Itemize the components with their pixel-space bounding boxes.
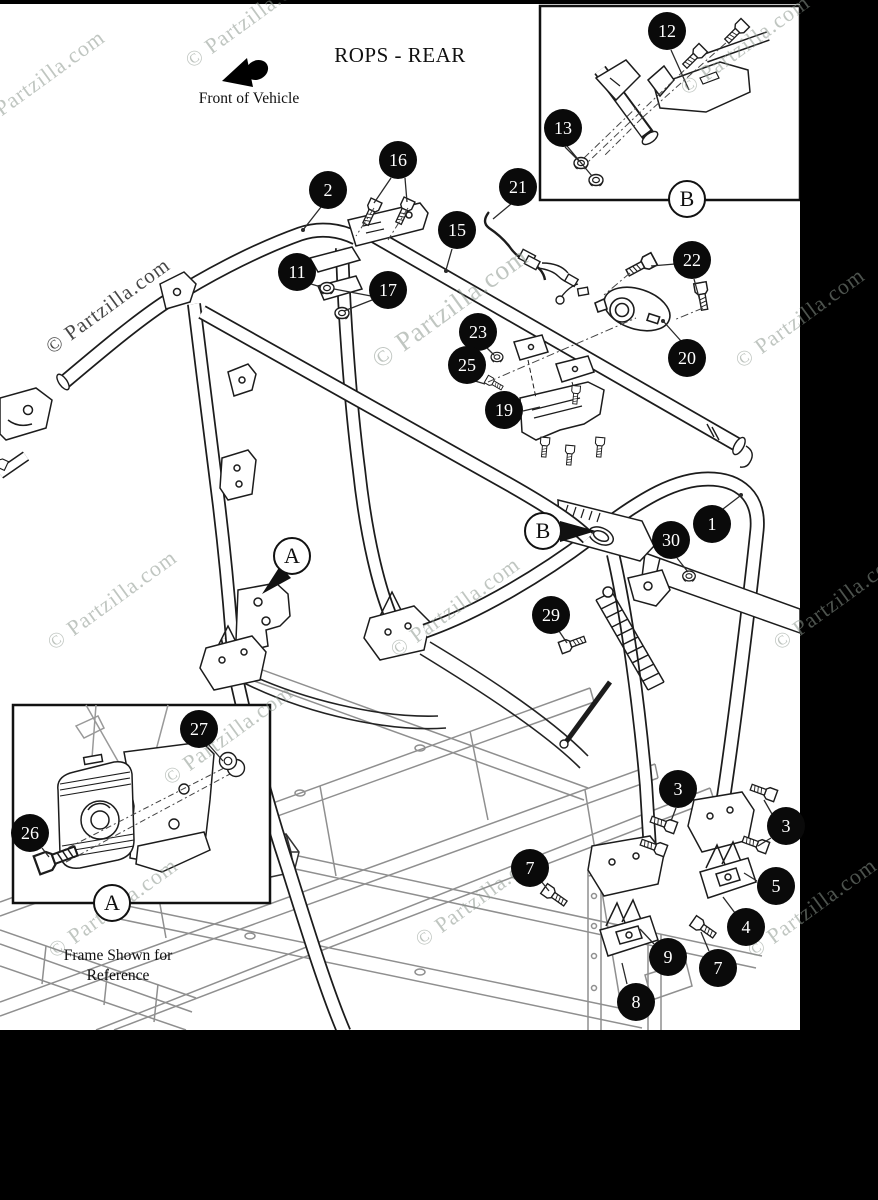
callout-22: 22 bbox=[673, 241, 711, 279]
callout-12: 12 bbox=[648, 12, 686, 50]
callout-1: 1 bbox=[693, 505, 731, 543]
callout-27: 27 bbox=[180, 710, 218, 748]
parts-diagram-page: © Partzilla.com © Partzilla.com © Partzi… bbox=[0, 0, 878, 1200]
callout-15: 15 bbox=[438, 211, 476, 249]
front-of-vehicle-label: Front of Vehicle bbox=[194, 90, 304, 108]
callout-3-b: 3 bbox=[767, 807, 805, 845]
callout-11: 11 bbox=[278, 253, 316, 291]
callout-8: 8 bbox=[617, 983, 655, 1021]
page-title: ROPS - REAR bbox=[290, 43, 510, 68]
frame-note-line-2: Reference bbox=[28, 966, 208, 986]
callout-30: 30 bbox=[652, 521, 690, 559]
detail-ref-b-inset: B bbox=[668, 180, 706, 218]
callout-26: 26 bbox=[11, 814, 49, 852]
callout-16: 16 bbox=[379, 141, 417, 179]
callout-13: 13 bbox=[544, 109, 582, 147]
callout-9: 9 bbox=[649, 938, 687, 976]
callout-4: 4 bbox=[727, 908, 765, 946]
frame-note-line-1: Frame Shown for bbox=[28, 946, 208, 966]
callout-17: 17 bbox=[369, 271, 407, 309]
callout-19: 19 bbox=[485, 391, 523, 429]
callout-25: 25 bbox=[448, 346, 486, 384]
callout-7-b: 7 bbox=[699, 949, 737, 987]
detail-ref-a-main: A bbox=[273, 537, 311, 575]
callout-7-a: 7 bbox=[511, 849, 549, 887]
detail-ref-b-main: B bbox=[524, 512, 562, 550]
callout-29: 29 bbox=[532, 596, 570, 634]
callout-5: 5 bbox=[757, 867, 795, 905]
callout-3-a: 3 bbox=[659, 770, 697, 808]
detail-ref-a-inset: A bbox=[93, 884, 131, 922]
frame-reference-note: Frame Shown for Reference bbox=[28, 946, 208, 986]
callout-2: 2 bbox=[309, 171, 347, 209]
callout-21: 21 bbox=[499, 168, 537, 206]
callout-20: 20 bbox=[668, 339, 706, 377]
